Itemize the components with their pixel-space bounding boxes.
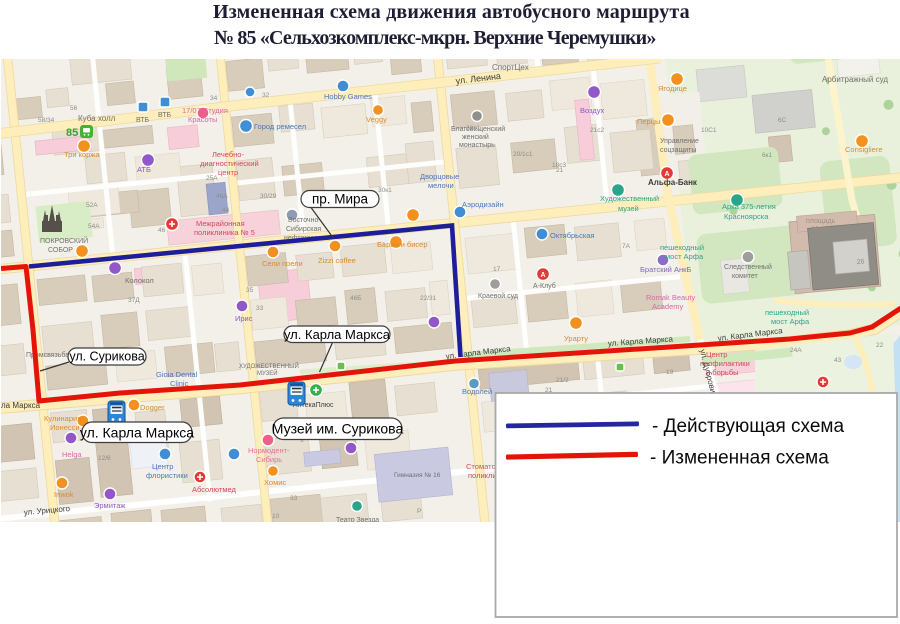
- svg-text:ул. Карла Маркса: ул. Карла Маркса: [80, 425, 194, 441]
- svg-text:Ягодице: Ягодице: [658, 84, 687, 93]
- svg-text:ХУДОЖЕСТВЕННЫЙ: ХУДОЖЕСТВЕННЫЙ: [239, 362, 299, 370]
- svg-text:37Д: 37Д: [128, 297, 140, 304]
- svg-text:18с3: 18с3: [552, 162, 566, 169]
- svg-text:площадь: площадь: [806, 218, 836, 225]
- svg-text:Мира: Мира: [812, 226, 830, 233]
- svg-text:СпортЦех: СпортЦех: [492, 63, 529, 72]
- svg-text:Аэродизайн: Аэродизайн: [462, 200, 504, 209]
- svg-text:Колокол: Колокол: [125, 276, 154, 285]
- svg-text:21с2: 21с2: [590, 127, 604, 134]
- svg-text:СОБОР: СОБОР: [48, 247, 73, 254]
- svg-text:12/6: 12/6: [98, 455, 111, 462]
- svg-text:А-Клуб: А-Клуб: [533, 282, 556, 290]
- svg-text:Альфа-Банк: Альфа-Банк: [648, 178, 698, 187]
- svg-text:- Действующая схема: - Действующая схема: [652, 416, 844, 437]
- svg-text:6С: 6С: [778, 117, 787, 124]
- svg-text:Хомис: Хомис: [264, 478, 286, 487]
- svg-text:профилактики: профилактики: [700, 359, 750, 368]
- svg-text:35: 35: [246, 287, 254, 294]
- svg-text:46А: 46А: [216, 193, 228, 200]
- svg-text:Театр Звезда: Театр Звезда: [336, 517, 379, 524]
- svg-text:поликли: поликли: [468, 471, 497, 480]
- svg-text:33: 33: [290, 495, 298, 502]
- svg-text:22с1: 22с1: [466, 125, 480, 132]
- svg-text:10: 10: [272, 513, 280, 520]
- svg-text:58/34: 58/34: [38, 117, 55, 124]
- svg-text:43: 43: [834, 357, 842, 364]
- svg-text:женский: женский: [462, 133, 489, 141]
- svg-text:Сибирь: Сибирь: [256, 455, 282, 464]
- svg-text:монастырь: монастырь: [459, 142, 495, 149]
- svg-text:46: 46: [158, 227, 166, 234]
- svg-text:Hobby Games: Hobby Games: [324, 92, 372, 101]
- svg-text:Красноярска: Красноярска: [724, 212, 769, 221]
- svg-text:19: 19: [666, 369, 674, 376]
- svg-text:мост Арфа: мост Арфа: [665, 252, 704, 261]
- svg-text:МУЗЕЙ: МУЗЕЙ: [257, 369, 278, 377]
- svg-text:30/29: 30/29: [260, 193, 277, 200]
- svg-text:Romak Beauty: Romak Beauty: [646, 293, 695, 302]
- svg-text:Центр: Центр: [152, 462, 173, 471]
- svg-text:25А: 25А: [206, 175, 218, 182]
- svg-text:Нормодент-: Нормодент-: [248, 446, 290, 455]
- svg-text:Сибирская: Сибирская: [286, 225, 321, 233]
- svg-text:33: 33: [256, 305, 264, 312]
- svg-text:Дворцовые: Дворцовые: [420, 172, 459, 181]
- svg-text:Художественный: Художественный: [600, 194, 659, 203]
- svg-text:Ирис: Ирис: [235, 314, 253, 323]
- svg-text:32: 32: [262, 92, 270, 99]
- svg-text:46Б: 46Б: [350, 295, 362, 302]
- svg-text:Баран и бисер: Баран и бисер: [377, 240, 428, 249]
- svg-text:центр: центр: [218, 168, 238, 177]
- svg-text:пр. Мира: пр. Мира: [312, 192, 369, 207]
- svg-text:Р: Р: [417, 508, 421, 515]
- svg-text:Стомато: Стомато: [466, 462, 496, 471]
- svg-text:пешеходный: пешеходный: [660, 243, 704, 252]
- svg-text:мост Арфа: мост Арфа: [771, 317, 810, 326]
- svg-text:30к1: 30к1: [378, 187, 392, 194]
- svg-text:44: 44: [222, 207, 230, 214]
- svg-text:ВТБ: ВТБ: [136, 117, 149, 124]
- svg-text:Куба холл: Куба холл: [78, 114, 116, 123]
- svg-text:Арка 375-летия: Арка 375-летия: [722, 202, 776, 211]
- svg-text:ВТБ: ВТБ: [158, 112, 171, 119]
- svg-text:пешеходный: пешеходный: [765, 308, 809, 317]
- svg-text:Абсолютмед: Абсолютмед: [192, 485, 236, 494]
- svg-text:Центр: Центр: [706, 350, 727, 359]
- svg-text:24А: 24А: [790, 347, 802, 354]
- svg-text:ул. Сурикова: ул. Сурикова: [69, 350, 144, 364]
- svg-text:7А: 7А: [622, 243, 631, 250]
- svg-text:Красоты: Красоты: [188, 115, 217, 124]
- svg-text:мелочи: мелочи: [428, 181, 454, 190]
- svg-text:52А: 52А: [86, 202, 98, 209]
- svg-text:6к1: 6к1: [762, 152, 772, 159]
- svg-text:Межрайонная: Межрайонная: [196, 219, 245, 228]
- svg-text:Эрмитаж: Эрмитаж: [94, 501, 125, 510]
- svg-text:ла Маркса: ла Маркса: [1, 401, 41, 410]
- svg-text:Gioia Dental: Gioia Dental: [156, 370, 198, 379]
- svg-text:22/31: 22/31: [420, 295, 437, 302]
- svg-text:26: 26: [856, 258, 864, 266]
- svg-text:Воздух: Воздух: [580, 106, 604, 115]
- svg-text:Veggy: Veggy: [366, 115, 387, 124]
- svg-text:ул. Карла Маркса: ул. Карла Маркса: [284, 327, 391, 342]
- svg-text:Кулинария: Кулинария: [44, 414, 81, 423]
- svg-text:Управление: Управление: [660, 138, 699, 145]
- svg-text:флористики: флористики: [146, 471, 188, 480]
- svg-text:Гимназия № 16: Гимназия № 16: [394, 472, 441, 479]
- svg-text:- Измененная схема: - Измененная схема: [650, 448, 829, 469]
- svg-text:Dogger: Dogger: [140, 403, 165, 412]
- svg-text:поликлиника № 5: поликлиника № 5: [194, 228, 255, 237]
- svg-text:Следственный: Следственный: [724, 263, 772, 271]
- svg-text:Zizzi coffee: Zizzi coffee: [318, 256, 356, 265]
- svg-text:диагностический: диагностический: [200, 159, 259, 168]
- svg-text:Октябрьская: Октябрьская: [550, 231, 595, 240]
- svg-text:34: 34: [210, 95, 218, 102]
- svg-text:Academy: Academy: [652, 302, 684, 311]
- svg-text:20/1с1: 20/1с1: [513, 151, 533, 158]
- svg-text:музей: музей: [618, 204, 639, 213]
- svg-text:Краевой суд: Краевой суд: [478, 292, 518, 300]
- svg-text:22: 22: [876, 342, 884, 349]
- svg-text:Лечебно-: Лечебно-: [212, 150, 244, 159]
- svg-text:Арбитражный суд: Арбитражный суд: [822, 75, 888, 84]
- svg-text:54А: 54А: [88, 223, 100, 230]
- svg-text:А: А: [664, 171, 669, 178]
- svg-text:10С1: 10С1: [701, 127, 717, 134]
- svg-text:Inwok: Inwok: [54, 490, 74, 499]
- svg-text:А: А: [540, 272, 545, 279]
- svg-text:21/2: 21/2: [556, 377, 569, 384]
- svg-text:Восточно-: Восточно-: [288, 217, 321, 224]
- svg-text:Город ремесел: Город ремесел: [254, 122, 306, 131]
- svg-text:соцзащиты: соцзащиты: [660, 147, 696, 154]
- svg-text:17: 17: [493, 266, 501, 273]
- svg-text:85: 85: [66, 127, 78, 139]
- svg-text:Водолей: Водолей: [462, 387, 492, 396]
- svg-text:Братский АнкБ: Братский АнкБ: [640, 265, 691, 274]
- svg-text:и борьбы: и борьбы: [706, 368, 739, 377]
- svg-text:Сели поели: Сели поели: [262, 259, 303, 268]
- svg-text:комитет: комитет: [732, 273, 759, 280]
- svg-text:56: 56: [70, 105, 78, 112]
- svg-text:Урарту: Урарту: [564, 334, 588, 343]
- svg-text:Музей им. Сурикова: Музей им. Сурикова: [272, 421, 404, 437]
- svg-text:17/07 Студия: 17/07 Студия: [182, 106, 228, 115]
- svg-text:Consigliere: Consigliere: [845, 145, 883, 154]
- svg-text:Три коржа: Три коржа: [64, 150, 100, 159]
- svg-text:Helga: Helga: [62, 450, 82, 459]
- svg-text:Перцы: Перцы: [637, 117, 660, 126]
- svg-text:АТБ: АТБ: [137, 165, 151, 174]
- svg-text:Ионесси: Ионесси: [50, 423, 80, 432]
- svg-text:ПОКРОВСКИЙ: ПОКРОВСКИЙ: [40, 236, 88, 245]
